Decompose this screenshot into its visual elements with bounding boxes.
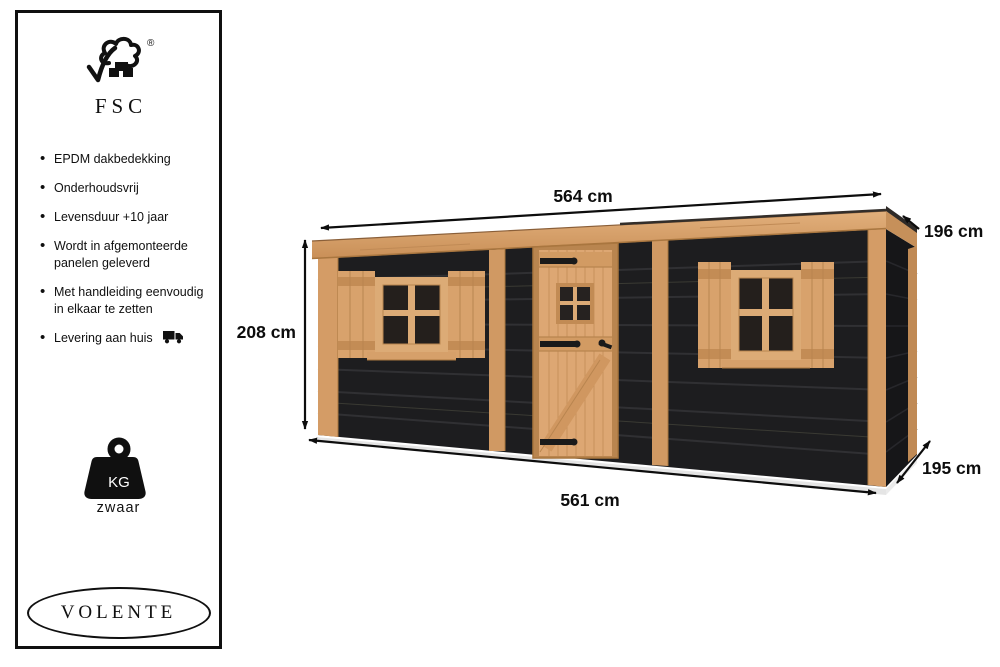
feature-list: EPDM dakbedekking Onderhoudsvrij Levensd… [40,151,217,359]
info-panel: ® FSC EPDM dakbedekking Onderhoudsvrij L… [15,10,222,649]
product-sheet: ® FSC EPDM dakbedekking Onderhoudsvrij L… [0,0,1000,667]
side-wall [886,206,917,487]
brand-name: VOLENTE [61,602,177,624]
brand-logo: VOLENTE [27,587,211,639]
door [533,243,618,458]
left-window [338,271,485,360]
fsc-tree-icon: ® [79,33,159,93]
feature-item: Met handleiding eenvoudig in elkaar te z… [40,284,217,318]
dim-bottom-width-label: 561 cm [560,490,619,510]
right-window [698,262,834,368]
feature-item: Levensduur +10 jaar [40,209,217,226]
feature-item: Onderhoudsvrij [40,180,217,197]
dim-top-width-label: 564 cm [553,186,612,206]
feature-item-delivery: Levering aan huis [40,330,217,347]
shed-illustration [312,206,917,495]
weight-unit-label: KG [108,474,130,491]
registered-mark: ® [147,38,155,49]
weight-badge: KG zwaar [18,437,219,516]
dim-rear-height-label: 196 cm [924,221,983,241]
rear-corner-post [908,246,917,462]
fsc-logo: ® FSC [18,33,219,119]
weight-icon: KG [71,437,167,503]
window-sill [367,352,456,360]
feature-item: EPDM dakbedekking [40,151,217,168]
delivery-truck-icon [163,330,185,344]
feature-item: Wordt in afgemonteerde panelen geleverd [40,238,217,272]
shed-diagram: 564 cm 196 cm 208 cm 561 cm 195 cm [230,150,1000,535]
dim-depth-label: 195 cm [922,458,981,478]
weight-caption: zwaar [18,500,219,516]
fsc-label: FSC [18,94,219,119]
dim-front-height-label: 208 cm [237,322,296,342]
window-sill [722,360,810,368]
